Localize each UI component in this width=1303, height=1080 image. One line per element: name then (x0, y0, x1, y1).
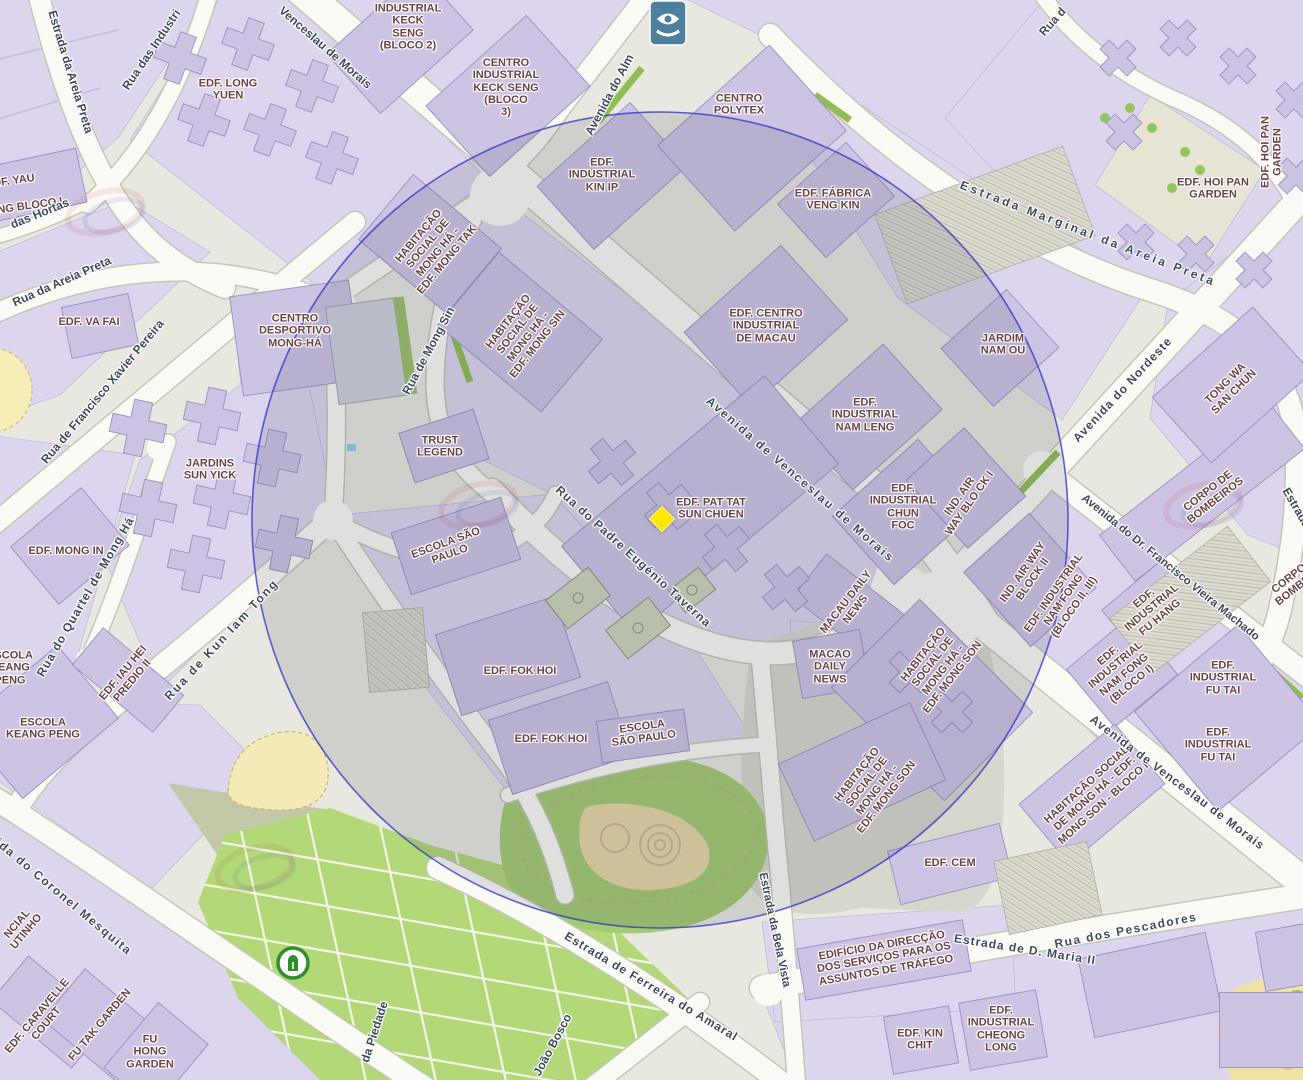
cemetery-icon[interactable] (278, 948, 308, 978)
map-canvas (0, 0, 1303, 1080)
landmark-icon[interactable] (650, 1, 686, 45)
map-viewport[interactable]: INDUSTRIAL KECK SENG (BLOCO 2)CENTRO IND… (0, 0, 1303, 1080)
